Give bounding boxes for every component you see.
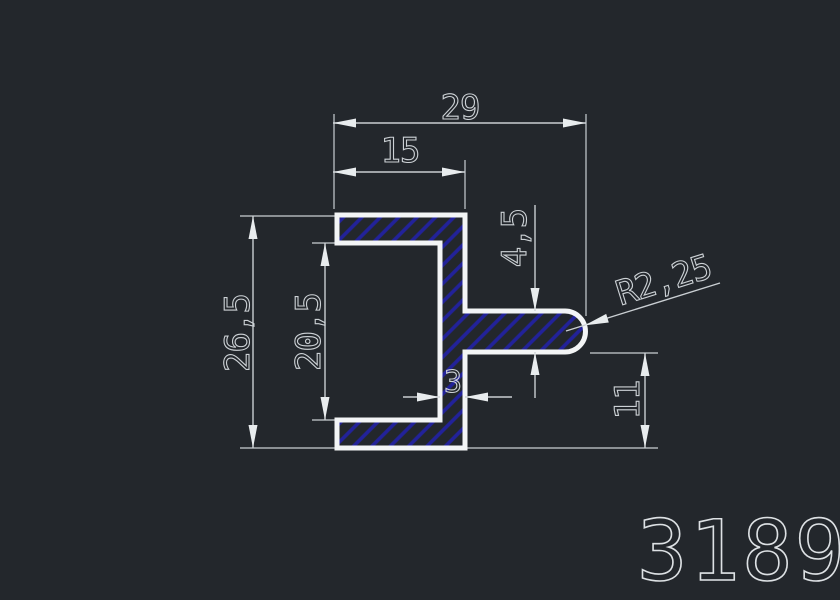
dim-text-overall-width: 29 bbox=[441, 88, 480, 128]
dim-text-flange-width: 15 bbox=[381, 131, 420, 171]
dim-text-tab-to-bottom: 11 bbox=[608, 381, 648, 420]
dim-text-tab-thickness: 4,5 bbox=[495, 209, 535, 267]
cad-canvas: 29 15 26,5 20,5 4,5 3 bbox=[0, 0, 840, 600]
part-number-text: 3189 bbox=[637, 502, 840, 600]
dim-text-overall-height: 26,5 bbox=[218, 294, 258, 372]
cad-drawing: 29 15 26,5 20,5 4,5 3 bbox=[0, 0, 840, 600]
dim-text-wall-thickness: 3 bbox=[444, 365, 462, 400]
dim-text-inner-height: 20,5 bbox=[289, 293, 329, 371]
